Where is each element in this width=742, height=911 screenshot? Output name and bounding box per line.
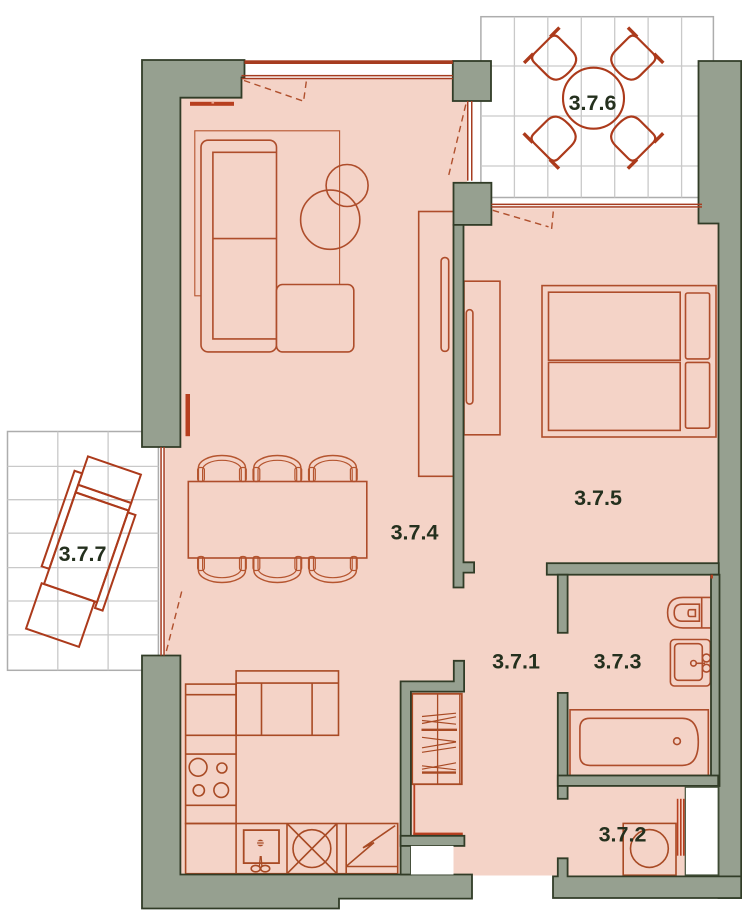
svg-text:3.7.4: 3.7.4 bbox=[391, 521, 439, 545]
svg-text:3.7.6: 3.7.6 bbox=[569, 91, 617, 115]
svg-text:3.7.5: 3.7.5 bbox=[574, 486, 622, 510]
svg-text:3.7.7: 3.7.7 bbox=[59, 542, 107, 566]
svg-text:3.7.1: 3.7.1 bbox=[492, 650, 540, 674]
svg-text:3.7.2: 3.7.2 bbox=[599, 823, 647, 847]
svg-text:3.7.3: 3.7.3 bbox=[594, 650, 642, 674]
